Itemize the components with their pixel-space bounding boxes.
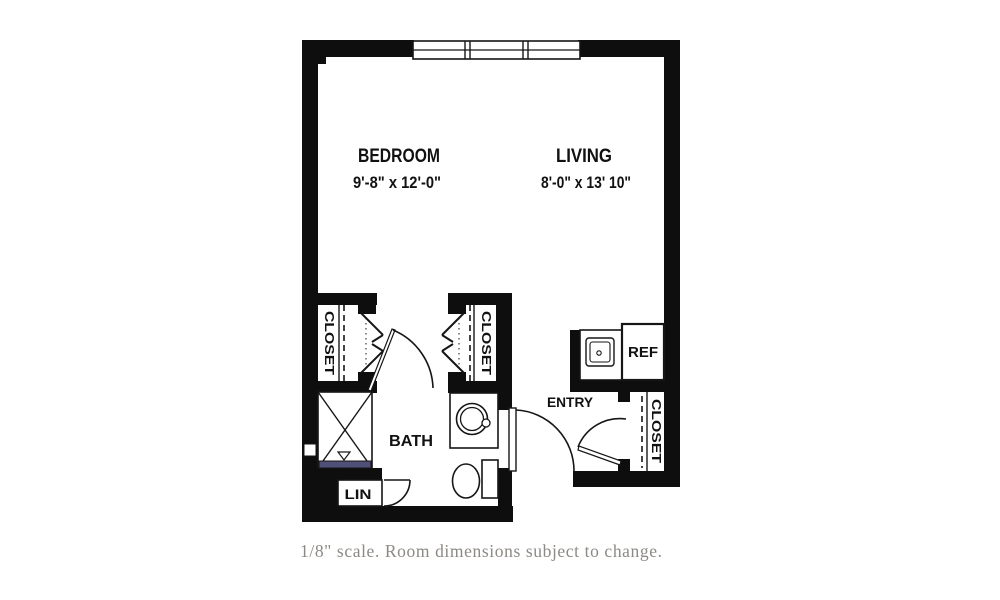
bath-label: BATH [389,433,433,450]
floorplan-drawing: BEDROOM 9'-8" x 12'-0" LIVING 8'-0" x 13… [0,0,1000,600]
toilet-tank [482,460,498,498]
shower-threshold [319,461,371,468]
kitchenette-sink-drain [597,351,601,355]
linen-west-wall [302,468,338,522]
bath-entry-door-leaf [509,408,516,471]
living-dimensions: 8'-0" x 13' 10" [541,173,631,192]
entry-label: ENTRY [547,394,594,410]
bath-entry-door [509,408,574,471]
left-closet-top-jamb [358,305,376,314]
bath-door-leaf [368,329,395,391]
entry-closet [642,392,647,471]
linen-label: LIN [345,486,372,502]
entry-door [578,419,626,465]
bath-sink-inner [461,408,484,431]
right-wall [664,40,680,487]
left-closet-label: CLOSET [322,311,337,375]
entry-door-leaf [578,446,621,465]
linen-door-swing-arc [384,480,410,506]
entry-door-swing-arc [578,419,626,447]
bath-entry-door-swing-arc [516,410,574,471]
window-band [413,41,580,59]
middle-closet [442,305,474,381]
bath-fixtures [450,393,498,498]
bath-door-swing-arc [393,330,433,388]
left-wall-corner-notch [318,55,326,64]
mid-closet-east-wall [496,293,512,393]
mid-closet-bifold-door [442,313,464,373]
bedroom-label: BEDROOM [358,146,440,167]
scale-caption: 1/8" scale. Room dimensions subject to c… [300,541,662,561]
top-wall-left-segment [302,40,414,57]
entry-closet-top-jamb [618,392,630,402]
bottom-wall-entry [573,471,680,487]
left-closet-top-wall [318,293,377,305]
refrigerator-label: REF [628,345,658,361]
bath-east-wall-lower [498,468,512,506]
floorplan-page: BEDROOM 9'-8" x 12'-0" LIVING 8'-0" x 13… [0,0,1000,600]
bath-sink-drain [482,419,490,427]
living-label: LIVING [556,146,612,167]
bedroom-dimensions: 9'-8" x 12'-0" [353,173,441,192]
entry-closet-label: CLOSET [649,399,664,463]
mid-closet-label: CLOSET [479,311,494,375]
shower-wall-niche [304,444,316,456]
toilet-bowl [453,464,480,498]
